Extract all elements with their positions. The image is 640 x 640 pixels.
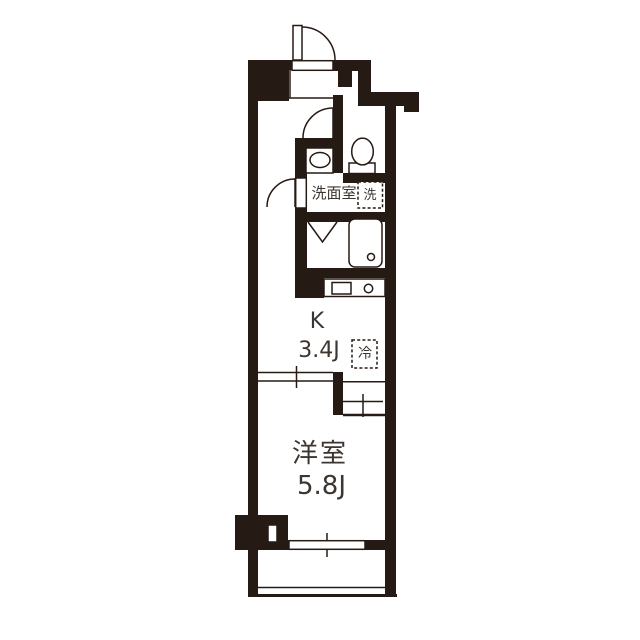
wall-toilet-left [333, 95, 343, 173]
floorplan-canvas: 洗面室 洗 K 3.4J 冷 洋室 5.8J [0, 0, 640, 640]
kitchen-size-label: 3.4J [292, 340, 346, 362]
wall-washroom-left-upper [295, 138, 307, 178]
entrance-door-arc [302, 27, 335, 60]
western-room-size-label: 5.8J [293, 473, 350, 499]
plan-lines [256, 27, 396, 588]
toilet-bowl-icon [352, 138, 374, 165]
entrance-threshold [292, 61, 333, 71]
bath-folding-door [308, 222, 337, 242]
bathtub-drain-icon [368, 254, 375, 261]
kitchen-label: K [297, 311, 337, 333]
wall-topleft-chunk [258, 70, 289, 101]
hall-door-arc [303, 108, 333, 138]
washroom-label: 洗面室 [308, 186, 360, 201]
western-room-label: 洋室 [291, 441, 349, 467]
pipe-space-slot [268, 525, 277, 542]
vanity-sink-icon [310, 153, 330, 168]
wall-counter-left-chunk [295, 276, 324, 298]
entrance-door-leaf [293, 26, 302, 61]
wall-right-bar [358, 60, 371, 93]
pillar-block [235, 515, 288, 550]
washer-space-label: 洗 [357, 189, 383, 202]
bathtub-icon [349, 219, 382, 267]
kitchen-sink-icon [332, 283, 351, 295]
wall-washroom-left-lower [295, 208, 307, 268]
wall-top-left [248, 60, 292, 70]
refrigerator-label: 冷 [352, 347, 378, 361]
balcony-bottom-edge [248, 594, 397, 597]
wall-band-lip [404, 106, 419, 112]
kitchen-burner-icon [364, 284, 372, 292]
wall-room-bottom-right [363, 540, 385, 550]
washroom-door-arc [267, 179, 295, 207]
window-sash [289, 541, 365, 550]
washroom-door-sill [296, 178, 307, 208]
wall-partition-post [333, 372, 343, 415]
wall-right-outer [385, 106, 396, 597]
wall-band-upper-right [358, 92, 419, 106]
wall-genkan-right [338, 67, 352, 87]
